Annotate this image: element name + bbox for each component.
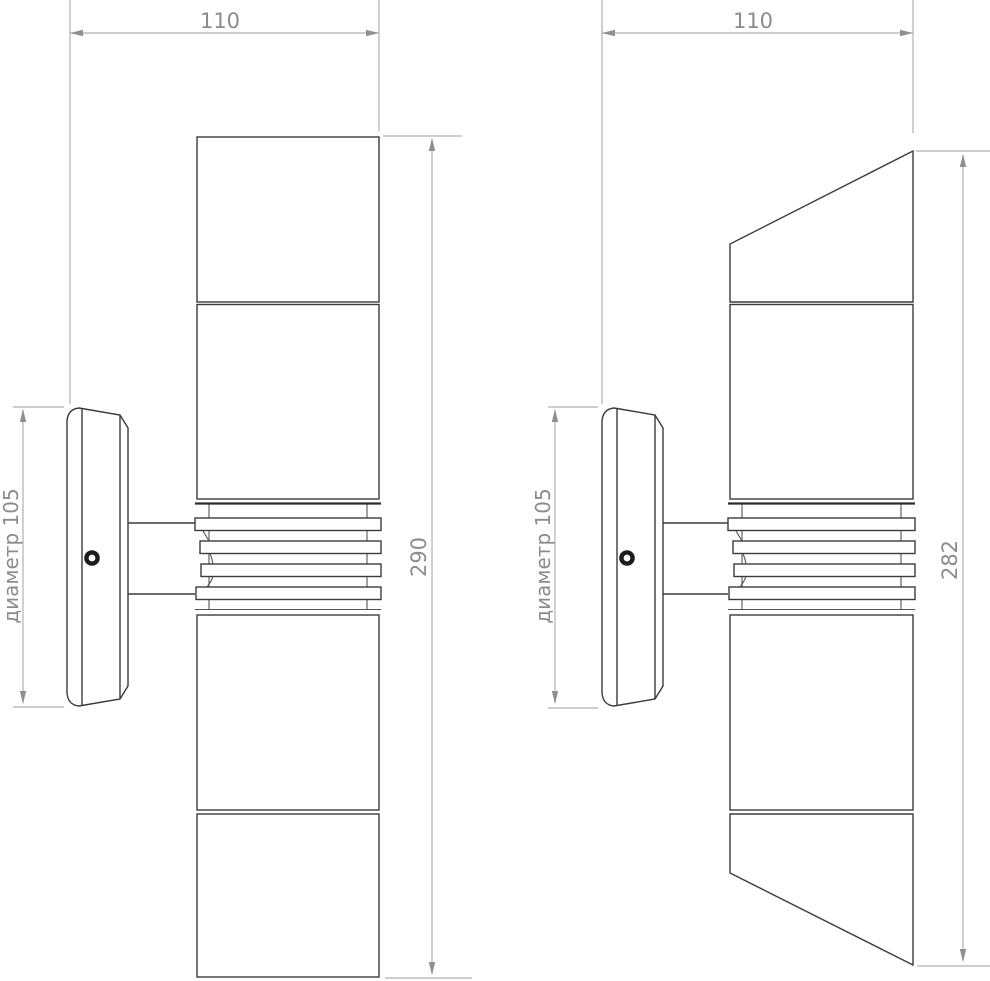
left-height-dimension: 290: [383, 136, 472, 978]
left-mounting: [67, 408, 195, 706]
fin: [195, 518, 381, 531]
top-glass-section: [197, 137, 379, 302]
left-fixture-body: [197, 137, 379, 977]
right-diameter-dimension: диаметр 105: [531, 407, 598, 708]
right-heatsink-fins: [728, 503, 915, 610]
mounting-arm: [663, 523, 728, 594]
fin: [201, 564, 381, 577]
arrowhead-up-icon: [429, 138, 435, 151]
left-width-dimension-label: 110: [200, 9, 240, 33]
top-angled-section: [730, 151, 913, 302]
fin: [728, 518, 915, 531]
arrowhead-left-icon: [602, 30, 615, 36]
arrowhead-down-icon: [960, 949, 966, 962]
fin: [200, 541, 381, 554]
right-height-dimension: 282: [916, 151, 990, 966]
drawing-canvas: 110 290 диаметр 105: [0, 0, 990, 981]
left-diameter-dimension: диаметр 105: [0, 407, 64, 707]
arrowhead-down-icon: [429, 962, 435, 975]
screw-icon: [621, 552, 632, 563]
arrowhead-down-icon: [20, 691, 26, 704]
bottom-glass-section: [197, 814, 379, 977]
right-mounting: [602, 408, 728, 706]
right-fixture-body: [730, 151, 913, 965]
bottom-angled-section: [730, 814, 913, 965]
fin: [734, 564, 915, 577]
arrowhead-down-icon: [552, 691, 558, 704]
view-right: 110 282 диаметр 105: [531, 0, 990, 966]
right-height-dimension-label: 282: [938, 540, 962, 580]
arrowhead-up-icon: [20, 409, 26, 422]
arrowhead-right-icon: [366, 30, 379, 36]
arrowhead-right-icon: [900, 30, 913, 36]
fin: [196, 587, 381, 600]
left-diameter-dimension-label: диаметр 105: [0, 488, 23, 623]
fin-silhouette-curves: [736, 531, 746, 587]
view-left: 110 290 диаметр 105: [0, 0, 472, 978]
technical-drawing-svg: 110 290 диаметр 105: [0, 0, 990, 981]
arrowhead-left-icon: [70, 30, 83, 36]
left-height-dimension-label: 290: [407, 537, 431, 577]
lower-body-section: [730, 615, 913, 810]
fin-silhouette-curves: [203, 531, 213, 587]
right-diameter-dimension-label: диаметр 105: [531, 488, 555, 623]
fin: [729, 587, 915, 600]
arrowhead-up-icon: [552, 409, 558, 422]
fin: [733, 541, 915, 554]
lower-body-section: [197, 615, 379, 810]
arrowhead-up-icon: [960, 154, 966, 167]
mounting-arm: [128, 523, 195, 594]
right-width-dimension-label: 110: [733, 9, 773, 33]
left-heatsink-fins: [195, 503, 381, 610]
upper-body-section: [197, 305, 379, 500]
upper-body-section: [730, 305, 913, 500]
screw-icon: [86, 552, 97, 563]
